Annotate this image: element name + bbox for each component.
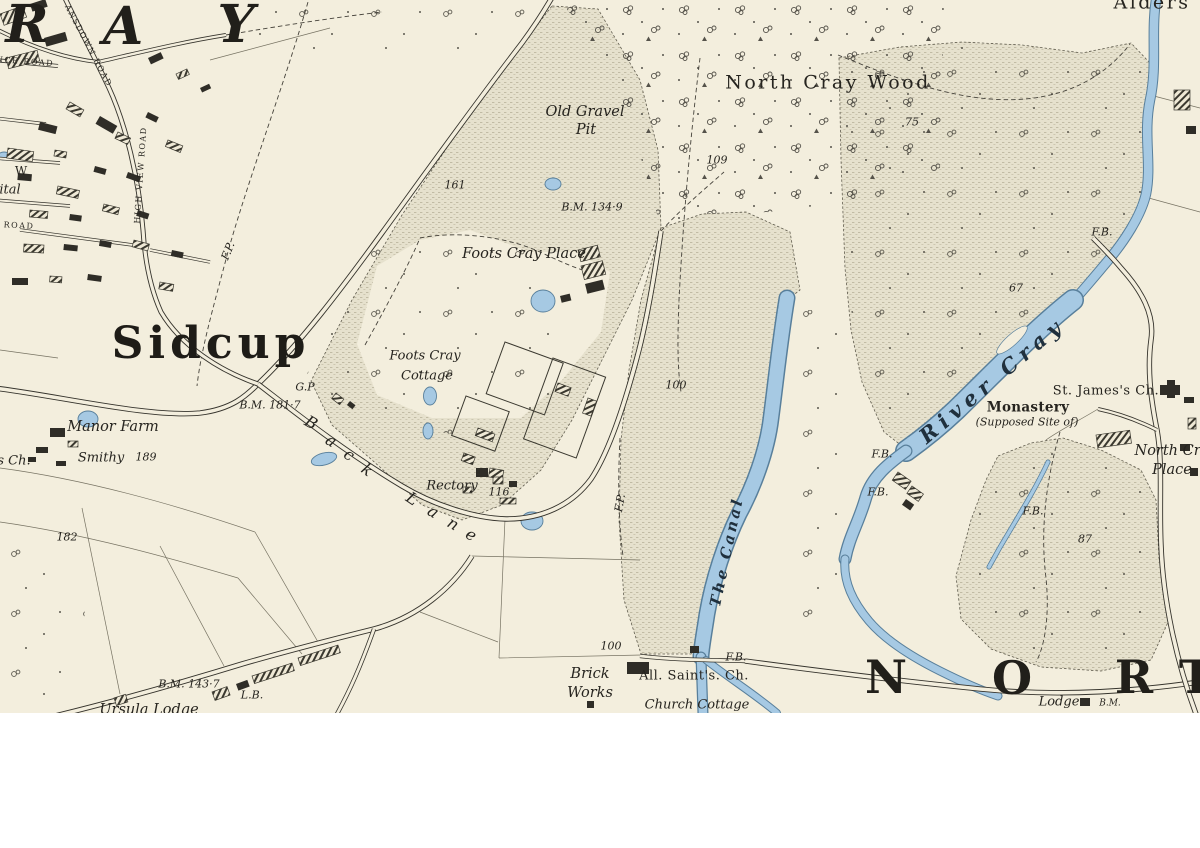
map-label: Foots Cray Place (462, 247, 586, 262)
map-label: R (5, 0, 48, 51)
attribution-footer: nls View: Kent VIII.SE (includes: Chisle… (0, 713, 1200, 848)
map-label: North Cray Wood (725, 74, 931, 93)
map-label: 87 (1078, 534, 1092, 545)
map-label: F.P. (220, 241, 237, 262)
map-label: L.B. (241, 690, 263, 701)
map-label: F.B. (1023, 506, 1044, 517)
map-label: 182 (57, 532, 78, 543)
map-label: 116 (489, 487, 510, 498)
map-label: n (445, 514, 462, 533)
map-label: Alders (1113, 0, 1190, 13)
map-label: Works (567, 686, 613, 701)
map-label: N (865, 654, 909, 700)
map-label: T (1179, 654, 1200, 700)
map-label: (Supposed Site of) (976, 417, 1079, 428)
map-label: Foots Cray (389, 350, 460, 363)
map-label: G.P (295, 382, 314, 393)
map-label: Church Cottage (645, 699, 750, 712)
map-label: s Ch. (0, 455, 31, 468)
map-label: R (1115, 654, 1155, 700)
map-label: F.B. (726, 652, 747, 663)
map-label: F.B. (1092, 227, 1113, 238)
map-label: L (403, 489, 421, 508)
map-label: B.M. 181·7 (239, 400, 300, 411)
map-label: Cottage (401, 370, 453, 383)
map-label: c (341, 446, 357, 464)
map-labels: RAYAldersNorth Cray WoodOld GravelPit161… (0, 0, 1200, 713)
map-label: k (358, 461, 375, 480)
map-label: ROAD (3, 221, 34, 231)
map-label: Pit (576, 123, 596, 138)
map-label: The Canal (708, 496, 746, 609)
map-label: a (425, 503, 442, 522)
map-label: Monastery (987, 401, 1070, 415)
map-label: F.B. (872, 449, 893, 460)
map-label: 100 (666, 380, 687, 391)
map-label: B.M. 143·7 (158, 679, 219, 690)
map-label: Smithy (78, 452, 124, 465)
map-label: Old Gravel (546, 105, 625, 120)
map-label: Rectory (426, 480, 477, 493)
map-label: St. James's Ch. (1053, 385, 1159, 398)
map-canvas[interactable]: RAYAldersNorth Cray WoodOld GravelPit161… (0, 0, 1200, 713)
map-label: O (992, 655, 1034, 701)
map-label: HIGH VIEW ROAD (134, 126, 149, 224)
map-label: Brick (570, 667, 609, 682)
map-label: Place (1152, 463, 1192, 478)
map-label: 161 (445, 180, 466, 191)
map-label: F.B. (868, 487, 889, 498)
map-label: Manor Farm (67, 420, 159, 435)
map-label: B (302, 413, 320, 433)
map-label: Sidcup (112, 322, 311, 366)
map-label: B.M. (1099, 700, 1121, 709)
map-label: a (323, 432, 340, 451)
map-viewer: RAYAldersNorth Cray WoodOld GravelPit161… (0, 0, 1200, 848)
map-label: NCE ROAD (0, 56, 54, 68)
map-label: W (15, 165, 27, 177)
map-label: North Cray (1135, 444, 1200, 459)
map-label: Y (217, 0, 254, 51)
map-label: 109 (707, 155, 728, 166)
map-label: e (463, 526, 479, 545)
map-label: B.M. 134·9 (561, 202, 622, 213)
map-label: 67 (1009, 283, 1023, 294)
map-label: A (103, 1, 143, 53)
map-label: 189 (136, 452, 157, 463)
map-label: 75 (905, 117, 919, 128)
map-label: Ursula Lodge (99, 703, 198, 713)
map-label: All. Saint's. Ch. (639, 670, 749, 683)
map-label: 100 (601, 641, 622, 652)
map-label: ital (0, 184, 21, 197)
map-label: F.P. (613, 493, 627, 513)
map-label: Lodge (1039, 696, 1080, 709)
